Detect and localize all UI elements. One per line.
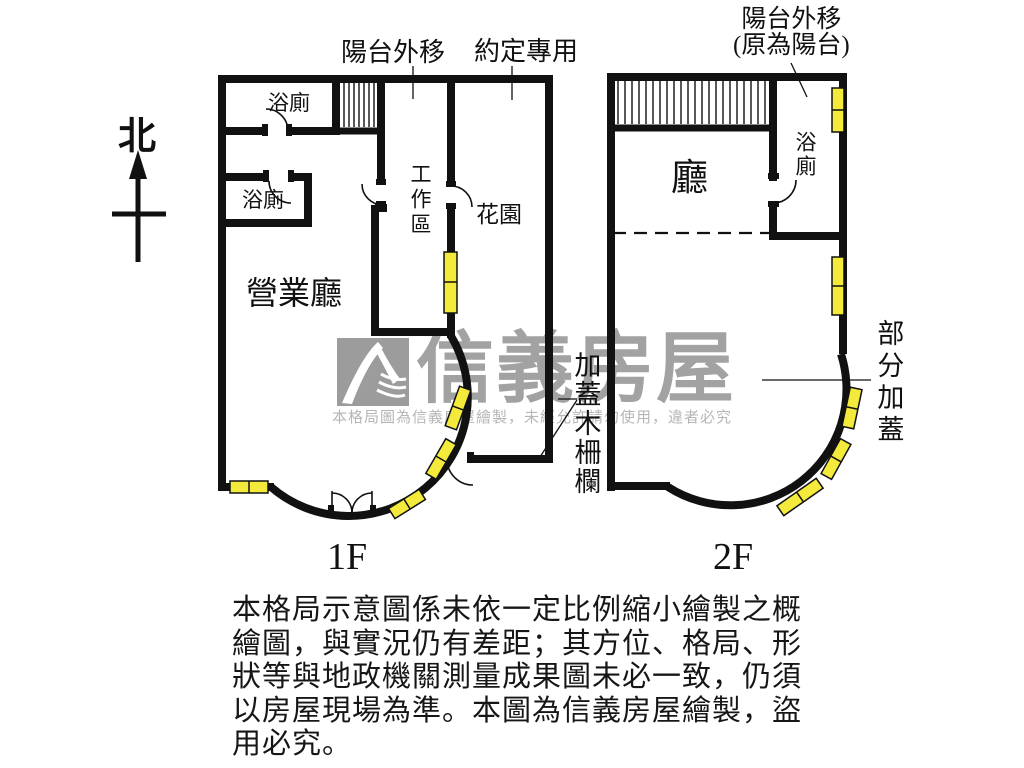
f2-balcony-out-line2: (原為陽台): [733, 33, 850, 59]
floor2-name: 2F: [713, 538, 753, 578]
f1-bathroom-mid-label: 浴廁: [242, 189, 284, 211]
floor2-door-jambs: [768, 173, 779, 207]
f1-fence-label: 加蓋木柵欄: [571, 351, 599, 496]
f2-bathroom-label: 浴廁: [794, 131, 816, 179]
north-label: 北: [118, 118, 156, 158]
f1-work-area-label: 工作區: [409, 163, 431, 238]
f1-agreed-use-label: 約定專用: [474, 38, 578, 65]
floor-plan-image: 信義房屋 本格局圖為信義房屋繪製，未經允許請勿使用，違者必究: [0, 0, 1024, 768]
f2-partial-cover-label: 部分加蓋: [874, 319, 902, 447]
floor2-windows: [777, 88, 862, 516]
floor2-hatch-lines: [618, 81, 765, 124]
f1-balcony-out-label: 陽台外移: [341, 39, 445, 66]
floor1-name: 1F: [327, 538, 367, 578]
north-arrow-icon: [112, 150, 166, 262]
floor2-doors: [773, 180, 796, 203]
f2-balcony-out-line1: 陽台外移: [733, 7, 850, 33]
f1-bathroom-top-label: 浴廁: [268, 92, 310, 114]
f2-balcony-out-label: 陽台外移 (原為陽台): [733, 7, 850, 60]
f2-hall-label: 廳: [671, 160, 708, 199]
f1-garden-label: 花園: [476, 203, 522, 227]
f1-business-hall-label: 營業廳: [246, 277, 342, 311]
floor1-hatch-lines: [344, 83, 374, 127]
leader-lines: [413, 63, 871, 457]
